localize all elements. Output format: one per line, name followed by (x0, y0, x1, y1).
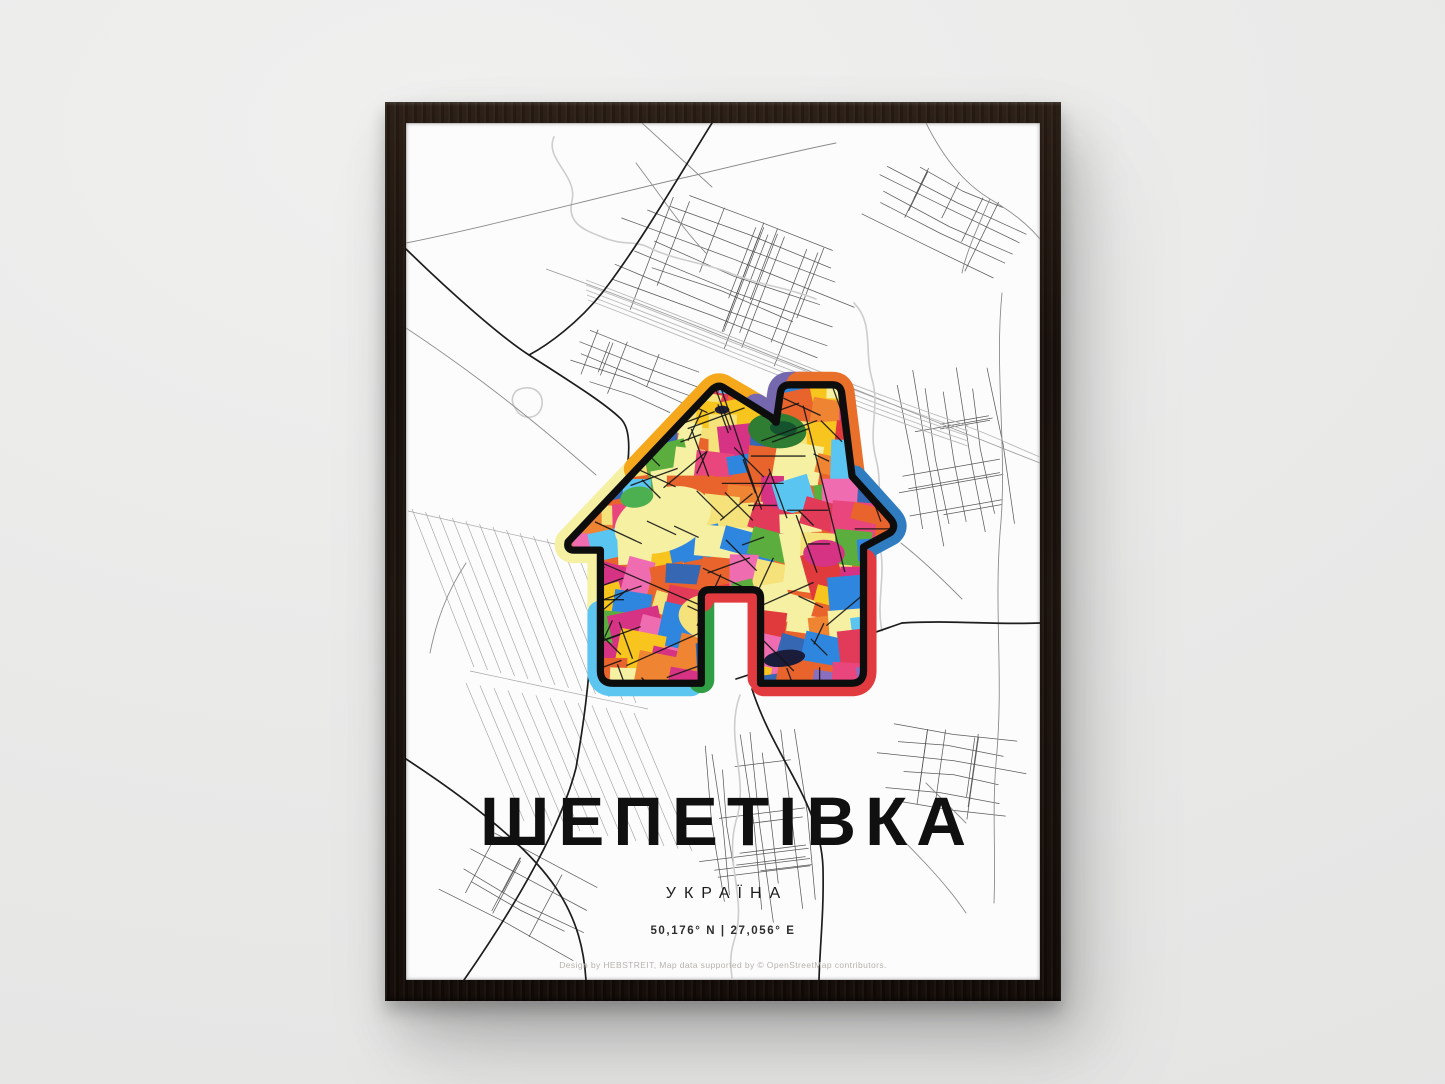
poster: ШЕПЕТІВКА УКРАЇНА 50,176° N | 27,056° E … (406, 123, 1040, 980)
wall: ШЕПЕТІВКА УКРАЇНА 50,176° N | 27,056° E … (0, 0, 1445, 1084)
poster-country: УКРАЇНА (406, 886, 1040, 902)
picture-frame: ШЕПЕТІВКА УКРАЇНА 50,176° N | 27,056° E … (385, 102, 1061, 1001)
poster-credit: Design by HEBSTREIT, Map data supported … (406, 961, 1040, 970)
poster-title: ШЕПЕТІВКА (406, 787, 1040, 856)
house-icon (525, 335, 934, 726)
poster-coordinates: 50,176° N | 27,056° E (406, 926, 1040, 938)
poster-text: ШЕПЕТІВКА УКРАЇНА 50,176° N | 27,056° E … (406, 787, 1040, 969)
